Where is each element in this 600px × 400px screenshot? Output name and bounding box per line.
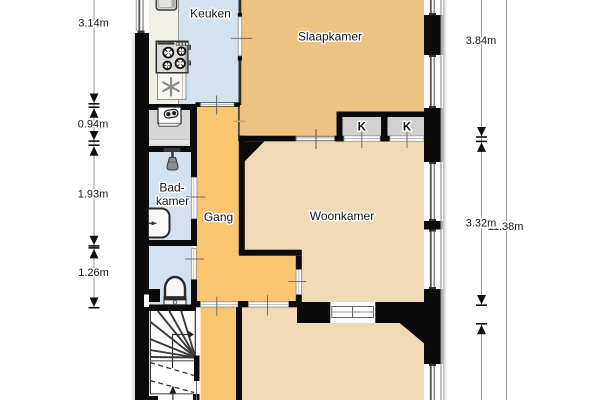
svg-text:3.32m: 3.32m <box>466 218 497 230</box>
svg-text:K: K <box>403 122 412 134</box>
svg-text:Keuken: Keuken <box>190 7 231 21</box>
svg-text:1.93m: 1.93m <box>78 188 109 200</box>
svg-text:Woonkamer: Woonkamer <box>310 209 374 223</box>
svg-text:Slaapkamer: Slaapkamer <box>298 30 362 44</box>
svg-text:3.14m: 3.14m <box>78 17 109 29</box>
svg-text:3.84m: 3.84m <box>466 35 497 47</box>
svg-text:Bad-: Bad- <box>159 180 184 194</box>
svg-text:K: K <box>358 122 367 134</box>
svg-text:0.94m: 0.94m <box>78 118 109 130</box>
svg-text:Gang: Gang <box>204 210 233 224</box>
svg-text:1.26m: 1.26m <box>78 267 109 279</box>
svg-text:kamer: kamer <box>156 194 189 208</box>
